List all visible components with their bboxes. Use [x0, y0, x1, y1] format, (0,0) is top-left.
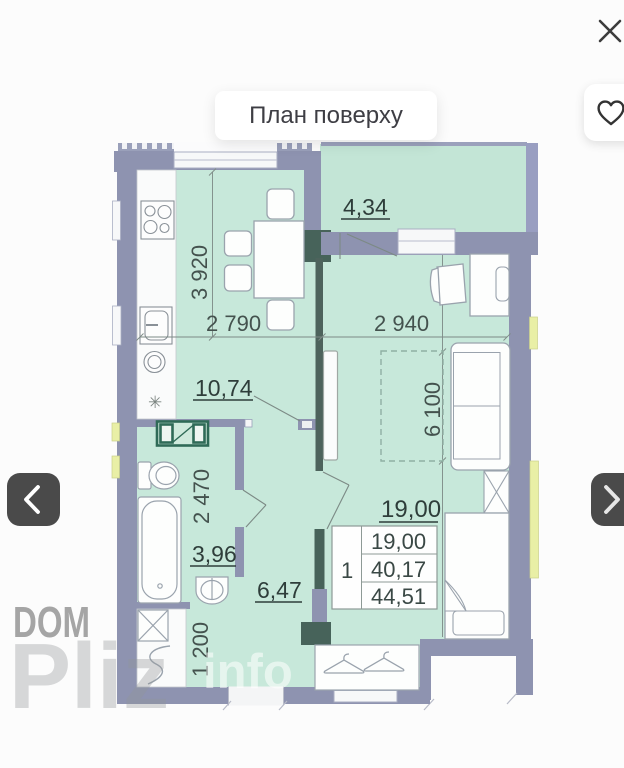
svg-text:19,00: 19,00: [381, 496, 441, 523]
svg-text:40,17: 40,17: [371, 557, 426, 582]
svg-text:4,34: 4,34: [343, 194, 388, 220]
svg-text:44,51: 44,51: [371, 584, 426, 609]
svg-text:2 790: 2 790: [206, 311, 261, 336]
svg-text:10,74: 10,74: [195, 375, 253, 401]
svg-text:1: 1: [341, 558, 353, 583]
svg-text:2 470: 2 470: [189, 469, 214, 524]
svg-text:3 920: 3 920: [187, 245, 212, 300]
svg-text:6,47: 6,47: [257, 577, 302, 603]
svg-text:2 940: 2 940: [374, 311, 429, 336]
svg-text:19,00: 19,00: [371, 529, 426, 554]
svg-text:3,96: 3,96: [192, 541, 237, 567]
svg-text:✳: ✳: [148, 393, 162, 412]
svg-text:6 100: 6 100: [420, 382, 445, 437]
